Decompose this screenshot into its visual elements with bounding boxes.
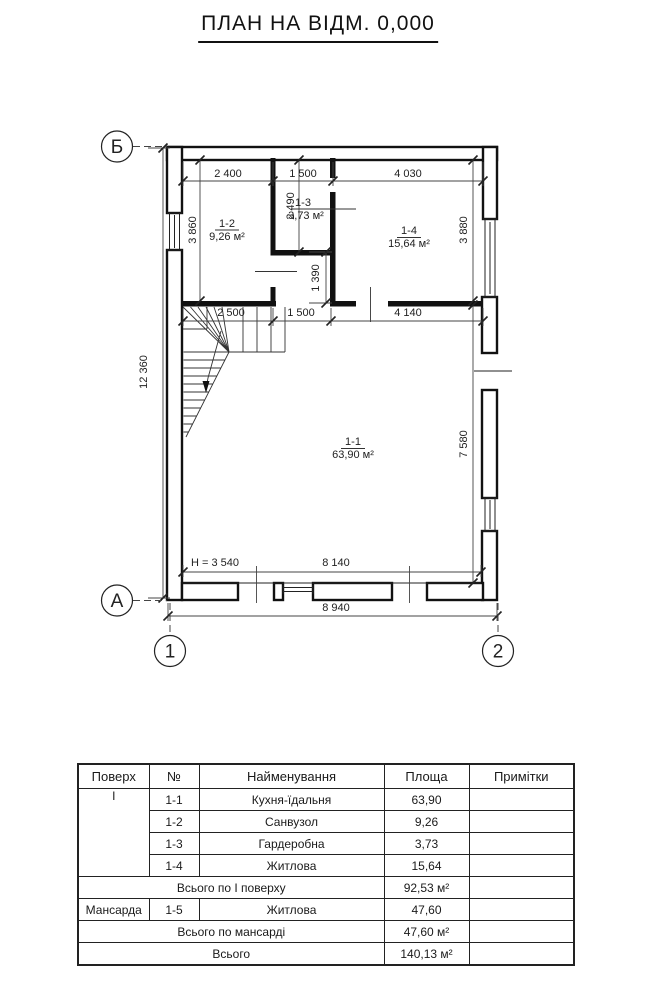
area-table: Поверх № Найменування Площа Примітки І 1… xyxy=(77,763,575,966)
room-name-cell: Кухня-їдальня xyxy=(199,789,384,811)
dim-label: 1 390 xyxy=(310,264,322,292)
room-number-cell: 1-4 xyxy=(149,855,199,877)
room-number: 1-4 xyxy=(401,225,417,237)
total-area-cell: 47,60 м² xyxy=(384,921,469,943)
notes-cell xyxy=(469,789,574,811)
notes-cell xyxy=(469,833,574,855)
floor-plan: 2 400 1 500 4 030 2 500 1 500 4 140 3 86… xyxy=(0,0,646,745)
room-name-cell: Житлова xyxy=(199,855,384,877)
notes-cell xyxy=(469,943,574,966)
total-label: Всього по І поверху xyxy=(78,877,384,899)
room-number: 1-1 xyxy=(345,436,361,448)
room-number-cell: 1-2 xyxy=(149,811,199,833)
room-number-cell: 1-3 xyxy=(149,833,199,855)
room-area: 63,90 м² xyxy=(332,449,374,461)
axis-label: 2 xyxy=(493,642,504,663)
dim-label: 2 500 xyxy=(217,307,245,319)
dim-label: 3 860 xyxy=(187,216,199,244)
drawing-sheet: ПЛАН НА ВІДМ. 0,000 xyxy=(0,0,646,999)
table-total-row: Всього по мансарді 47,60 м² xyxy=(78,921,574,943)
room-area-cell: 47,60 xyxy=(384,899,469,921)
room-name-cell: Санвузол xyxy=(199,811,384,833)
dim-label: 7 580 xyxy=(458,430,470,458)
col-header-notes: Примітки xyxy=(469,764,574,789)
notes-cell xyxy=(469,855,574,877)
total-label: Всього xyxy=(78,943,384,966)
staircase xyxy=(183,307,285,437)
table-row: 1-2 Санвузол 9,26 xyxy=(78,811,574,833)
dim-label: 12 360 xyxy=(138,355,150,389)
col-header-floor: Поверх xyxy=(78,764,149,789)
total-label: Всього по мансарді xyxy=(78,921,384,943)
notes-cell xyxy=(469,899,574,921)
floor-value: Мансарда xyxy=(78,899,149,921)
table-row: І 1-1 Кухня-їдальня 63,90 xyxy=(78,789,574,811)
dim-label: 2 400 xyxy=(214,168,242,180)
room-number: 1-2 xyxy=(219,218,235,230)
room-area: 3,73 м² xyxy=(288,210,324,222)
floor-value: І xyxy=(78,789,149,877)
ceiling-height-note: H = 3 540 xyxy=(191,557,239,569)
dim-label: 4 030 xyxy=(394,168,422,180)
col-header-name: Найменування xyxy=(199,764,384,789)
room-number: 1-3 xyxy=(295,197,311,209)
dim-label: 1 500 xyxy=(289,168,317,180)
windows xyxy=(167,213,512,594)
dim-label: 1 500 xyxy=(287,307,315,319)
room-area-cell: 3,73 xyxy=(384,833,469,855)
dim-label: 3 880 xyxy=(458,216,470,244)
notes-cell xyxy=(469,921,574,943)
room-number-cell: 1-1 xyxy=(149,789,199,811)
axis-label: 1 xyxy=(165,642,176,663)
notes-cell xyxy=(469,811,574,833)
table-total-row: Всього по І поверху 92,53 м² xyxy=(78,877,574,899)
room-name-cell: Гардеробна xyxy=(199,833,384,855)
col-header-area: Площа xyxy=(384,764,469,789)
col-header-number: № xyxy=(149,764,199,789)
total-area-cell: 140,13 м² xyxy=(384,943,469,966)
room-area: 9,26 м² xyxy=(209,231,245,243)
room-name-cell: Житлова xyxy=(199,899,384,921)
notes-cell xyxy=(469,877,574,899)
table-total-row: Всього 140,13 м² xyxy=(78,943,574,966)
room-area-cell: 15,64 xyxy=(384,855,469,877)
table-header-row: Поверх № Найменування Площа Примітки xyxy=(78,764,574,789)
dim-label: 8 940 xyxy=(322,602,350,614)
table-row: 1-4 Житлова 15,64 xyxy=(78,855,574,877)
room-number-cell: 1-5 xyxy=(149,899,199,921)
dim-label: 8 140 xyxy=(322,557,350,569)
axis-label: А xyxy=(111,591,124,612)
table-row: Мансарда 1-5 Житлова 47,60 xyxy=(78,899,574,921)
dim-label: 4 140 xyxy=(394,307,422,319)
axis-label: Б xyxy=(111,137,123,158)
total-area-cell: 92,53 м² xyxy=(384,877,469,899)
room-area-cell: 63,90 xyxy=(384,789,469,811)
room-area: 15,64 м² xyxy=(388,238,430,250)
room-area-cell: 9,26 xyxy=(384,811,469,833)
stair-direction-arrow xyxy=(203,381,210,393)
table-row: 1-3 Гардеробна 3,73 xyxy=(78,833,574,855)
